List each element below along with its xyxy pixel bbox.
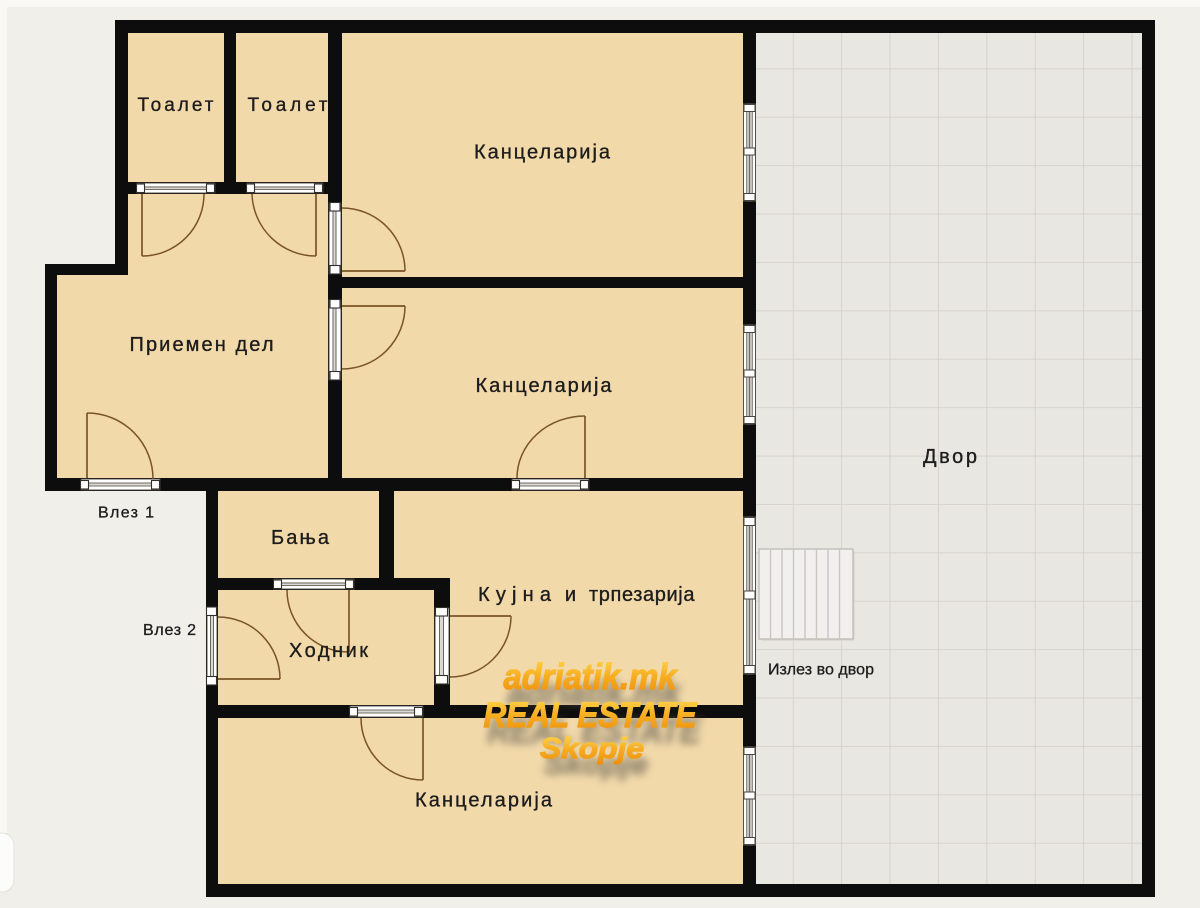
svg-text:Кујна: Кујна — [478, 584, 552, 606]
svg-text:Влез 2: Влез 2 — [143, 622, 196, 639]
svg-text:Skopje: Skopje — [540, 733, 644, 765]
svg-text:Бања: Бања — [271, 527, 330, 549]
svg-text:Влез 1: Влез 1 — [98, 505, 154, 522]
svg-text:трпезарија: трпезарија — [589, 584, 695, 606]
svg-text:REAL ESTATE: REAL ESTATE — [484, 696, 698, 735]
svg-text:adriatik.mk: adriatik.mk — [504, 656, 679, 697]
svg-text:Канцеларија: Канцеларија — [476, 375, 613, 397]
svg-text:Канцеларија: Канцеларија — [415, 790, 553, 812]
svg-text:Ходник: Ходник — [289, 640, 368, 662]
svg-text:Излез во двор: Излез во двор — [768, 662, 874, 679]
svg-text:Канцеларија: Канцеларија — [474, 142, 611, 164]
svg-text:Приемен дел: Приемен дел — [130, 334, 274, 356]
svg-text:и: и — [565, 584, 576, 606]
